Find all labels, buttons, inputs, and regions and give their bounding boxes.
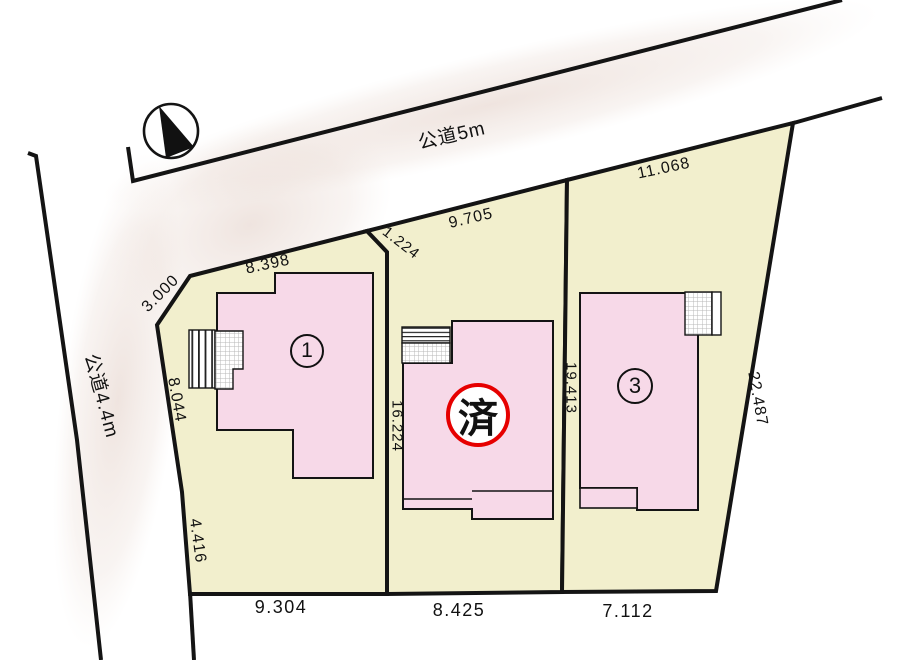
building-3-entrance-hatch [685, 292, 712, 335]
lot-3-number: 3 [629, 373, 641, 399]
dim-lot3-bottom-label: 7.112 [602, 602, 653, 620]
left-road-near-edge-extension-line [190, 592, 194, 660]
building-1-stairs-stripes [189, 330, 215, 388]
north-arrow-icon [144, 104, 198, 158]
lot-2-sold-stamp: 済 [446, 383, 510, 447]
dim-lot2-bottom-label: 8.425 [433, 601, 486, 619]
lot-3-number-badge: 3 [617, 368, 653, 404]
top-road-near-edge-extension-line [790, 98, 882, 124]
lot-2-sold-text: 済 [458, 386, 498, 444]
site-plan: 公道5m 公道4.4m 8.398 3.000 8.044 4.416 1.22… [0, 0, 900, 660]
building-3-lower-step [580, 488, 637, 508]
site-plan-drawing [0, 0, 900, 660]
building-3-entrance-step [712, 292, 721, 335]
lot-1-number: 1 [301, 339, 313, 363]
dim-lot1-bottom-label: 9.304 [255, 598, 308, 616]
building-2-entrance-hatch [402, 343, 450, 363]
lot-1-number-badge: 1 [290, 334, 324, 368]
dim-lot3-left-label: 19.413 [564, 362, 579, 414]
building-2-stairs-stripes [402, 327, 450, 343]
dim-lot2-left-label: 16.224 [390, 400, 405, 452]
